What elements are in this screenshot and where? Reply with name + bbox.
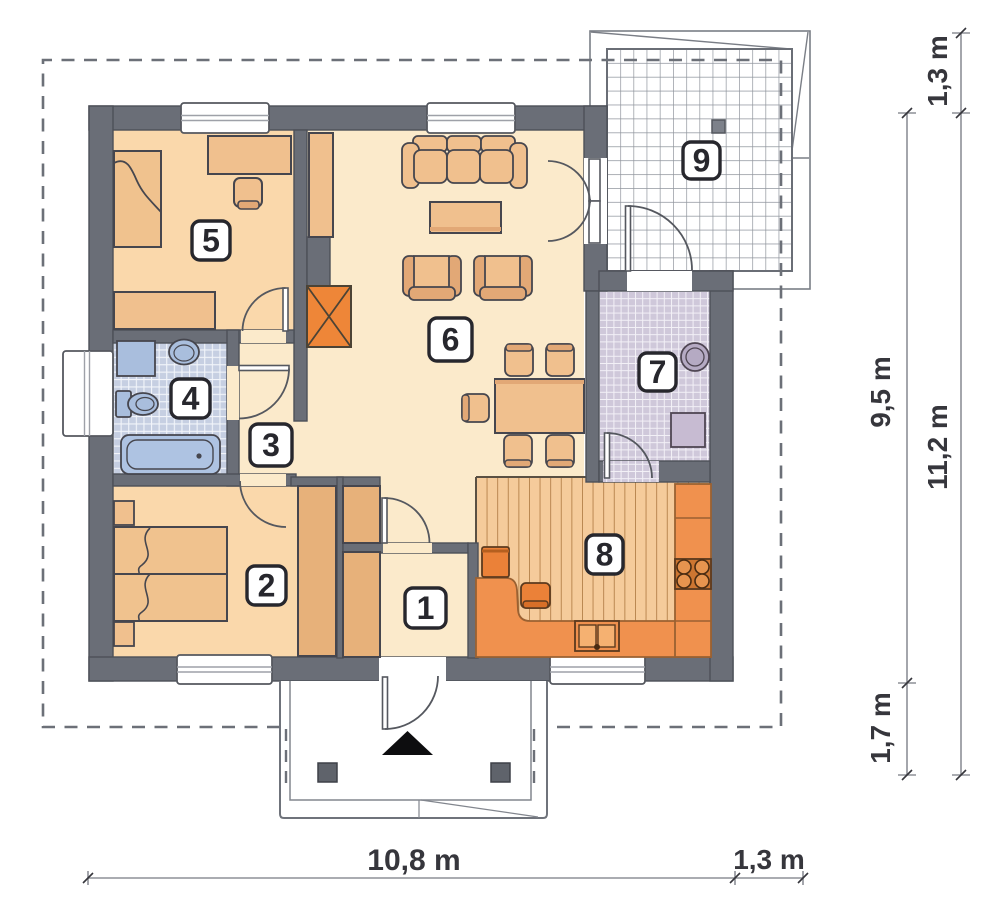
svg-text:1,3 m: 1,3 m bbox=[733, 844, 805, 875]
svg-text:1,3 m: 1,3 m bbox=[922, 35, 953, 107]
svg-text:2: 2 bbox=[258, 568, 276, 604]
svg-text:1,7 m: 1,7 m bbox=[865, 692, 896, 764]
svg-text:11,2 m: 11,2 m bbox=[922, 404, 953, 490]
svg-text:9: 9 bbox=[693, 143, 711, 179]
svg-text:5: 5 bbox=[202, 223, 220, 259]
svg-text:6: 6 bbox=[442, 322, 460, 358]
svg-text:7: 7 bbox=[649, 354, 667, 390]
svg-text:3: 3 bbox=[262, 427, 280, 463]
svg-text:4: 4 bbox=[182, 381, 200, 417]
svg-text:1: 1 bbox=[417, 590, 435, 626]
svg-text:8: 8 bbox=[596, 537, 614, 573]
svg-text:10,8 m: 10,8 m bbox=[367, 844, 460, 877]
svg-text:9,5 m: 9,5 m bbox=[865, 356, 896, 428]
